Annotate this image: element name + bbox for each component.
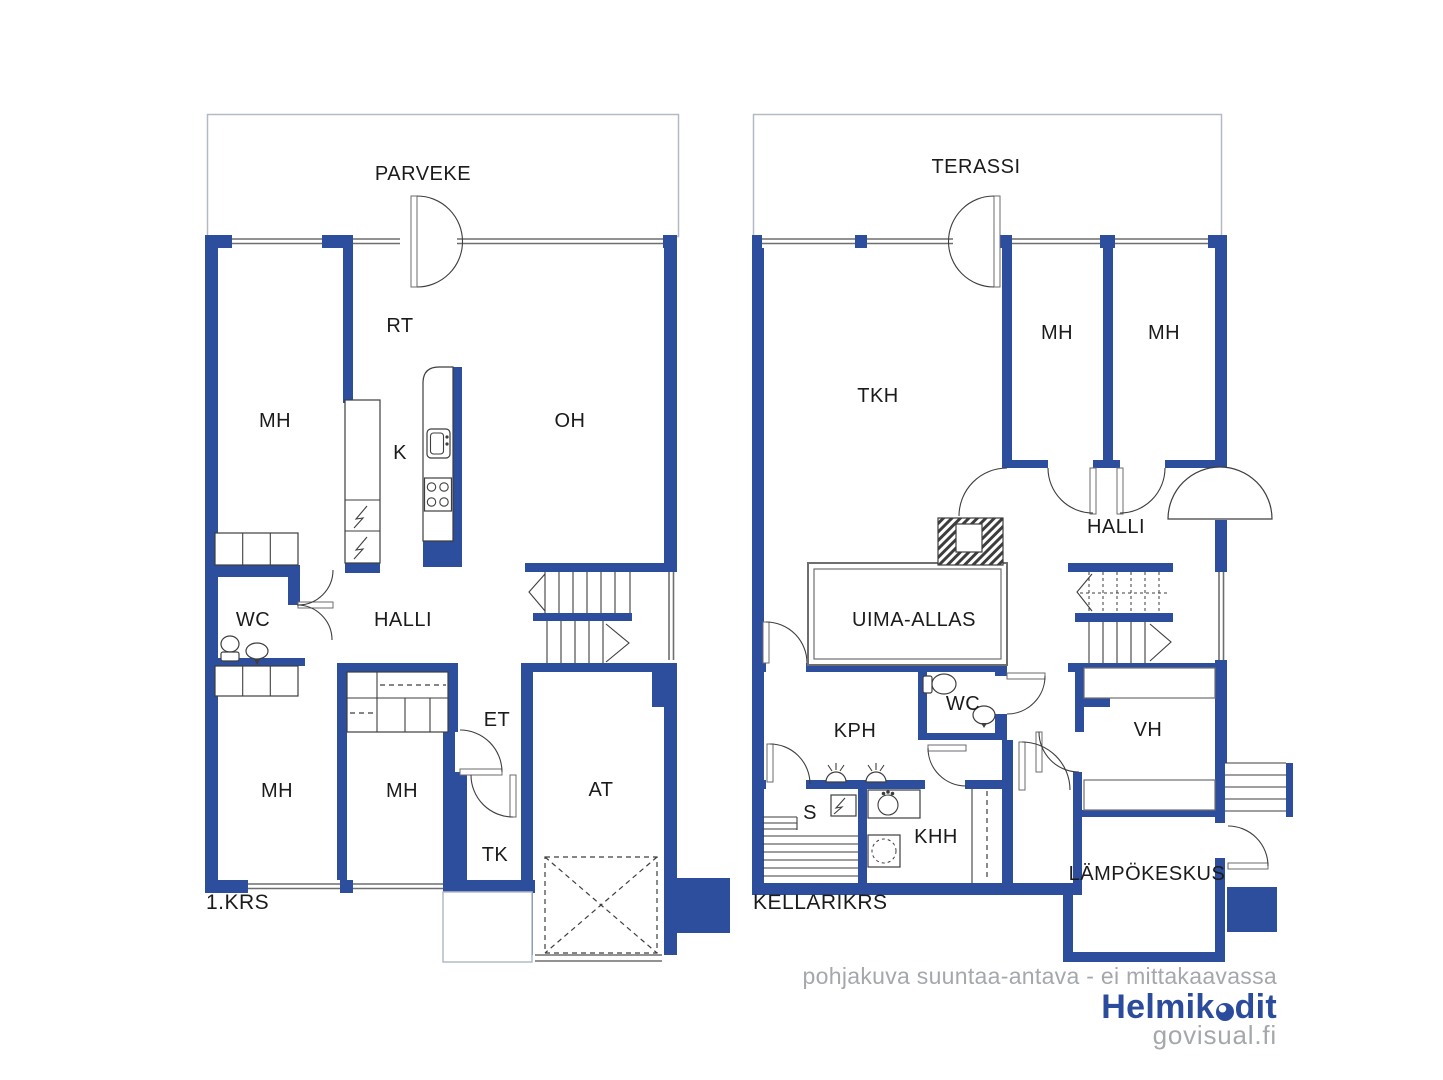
stairs-down-arrow	[1150, 624, 1171, 661]
garage-area	[443, 857, 662, 962]
room-label-uima-allas: UIMA-ALLAS	[852, 609, 976, 631]
room-label-et: ET	[484, 709, 511, 731]
mh2-door-leaf	[1117, 468, 1123, 514]
sauna-door-leaf	[767, 744, 773, 782]
floor-label-kellarikrs: KELLARIKRS	[753, 891, 888, 914]
floorplan-canvas: PARVEKE MH RT K OH WC HALLI ET MH MH TK …	[0, 0, 1443, 1080]
khh-door-arc	[928, 748, 966, 786]
hall-door-arc	[1022, 742, 1070, 790]
fridge-cabinet	[345, 400, 380, 563]
toilet-icon	[221, 636, 239, 652]
room-label-tkh: TKH	[857, 385, 899, 407]
right-plan-doors	[763, 196, 1272, 869]
tk-door-leaf	[510, 775, 516, 817]
room-label-lampokeskus: LÄMPÖKESKUS	[1069, 863, 1226, 885]
vh-door-arc	[1039, 732, 1079, 772]
brand-text-part1: Helmik	[1101, 990, 1214, 1024]
kph-door-arc	[766, 622, 807, 663]
entrance-canopy	[1168, 467, 1272, 519]
mh-door-arc	[298, 570, 333, 605]
room-label-kph: KPH	[834, 720, 877, 742]
lampo-door-leaf	[1228, 863, 1268, 869]
et-door-leaf	[460, 769, 502, 775]
room-label-s: S	[803, 802, 817, 824]
room-label-mh-lower-left: MH	[261, 780, 293, 802]
shower-symbols	[826, 763, 886, 782]
kitchen-fixtures	[345, 367, 453, 563]
exterior-stairs	[1225, 763, 1286, 811]
pool-and-fireplace	[808, 518, 1007, 665]
lampo-door-arc	[1228, 826, 1268, 866]
left-floor-plan: PARVEKE MH RT K OH WC HALLI ET MH MH TK …	[205, 115, 730, 963]
left-plan-doors	[297, 196, 516, 937]
room-label-halli: HALLI	[374, 609, 432, 631]
mh1-door-arc	[1048, 468, 1093, 513]
right-floor-plan: TERASSI TKH MH MH HALLI UIMA-ALLAS WC KP…	[752, 115, 1293, 963]
stairs-up-arrow	[1077, 574, 1092, 611]
hall-door-leaf	[1019, 742, 1025, 790]
shower-icon	[866, 772, 886, 782]
pearl-icon	[1216, 1003, 1234, 1021]
wc-door-arc	[297, 605, 332, 640]
stairs-up-arrow	[529, 574, 545, 611]
brand-logo: Helmikdit	[803, 990, 1277, 1024]
floor-label-1krs: 1.KRS	[206, 891, 269, 914]
room-label-wc: WC	[236, 609, 270, 631]
toilet-icon	[932, 674, 956, 694]
room-label-at: AT	[588, 779, 613, 801]
mh2-door-arc	[1120, 468, 1165, 513]
mh1-door-leaf	[1090, 468, 1096, 514]
left-plan-walls	[205, 235, 730, 955]
sink-icon	[246, 643, 268, 659]
et-door-arc	[460, 730, 502, 772]
floorplan-drawing: PARVEKE MH RT K OH WC HALLI ET MH MH TK …	[0, 0, 1443, 1080]
room-label-mh-upper: MH	[259, 410, 291, 432]
room-label-mh-lower-mid: MH	[386, 780, 418, 802]
website-text: govisual.fi	[803, 1022, 1277, 1049]
room-label-khh: KHH	[914, 826, 958, 848]
footer: pohjakuva suuntaa-antava - ei mittakaava…	[803, 963, 1277, 1049]
disclaimer-text: pohjakuva suuntaa-antava - ei mittakaava…	[803, 963, 1277, 989]
room-label-mh-1: MH	[1041, 322, 1073, 344]
room-label-vh: VH	[1134, 719, 1163, 741]
wc2-door-leaf	[1007, 673, 1045, 679]
room-label-terassi: TERASSI	[931, 156, 1020, 178]
tkh-halli-door-arc	[959, 468, 1007, 516]
sauna-door-arc	[770, 744, 810, 784]
khh-door-leaf	[928, 745, 966, 751]
kph-door-leaf	[763, 622, 769, 663]
wc2-door-arc	[1007, 676, 1045, 714]
room-label-parveke: PARVEKE	[375, 163, 471, 185]
stove-fixture	[425, 478, 452, 511]
room-label-tk: TK	[482, 844, 509, 866]
room-label-halli2: HALLI	[1087, 516, 1145, 538]
tk-door-arc	[471, 775, 513, 817]
room-label-wc2: WC	[946, 693, 980, 715]
balcony-door-leaf	[411, 196, 417, 287]
brand-text-part2: dit	[1235, 990, 1277, 1024]
washing-machine-icon	[868, 835, 900, 867]
room-label-mh-2: MH	[1148, 322, 1180, 344]
room-label-k: K	[393, 442, 407, 464]
shower-icon	[826, 772, 846, 782]
room-label-rt: RT	[386, 315, 413, 337]
room-label-oh: OH	[555, 410, 586, 432]
terrace-door-leaf	[994, 196, 1000, 287]
stairs-down-arrow	[606, 624, 629, 662]
vestibule-outline	[443, 892, 532, 962]
